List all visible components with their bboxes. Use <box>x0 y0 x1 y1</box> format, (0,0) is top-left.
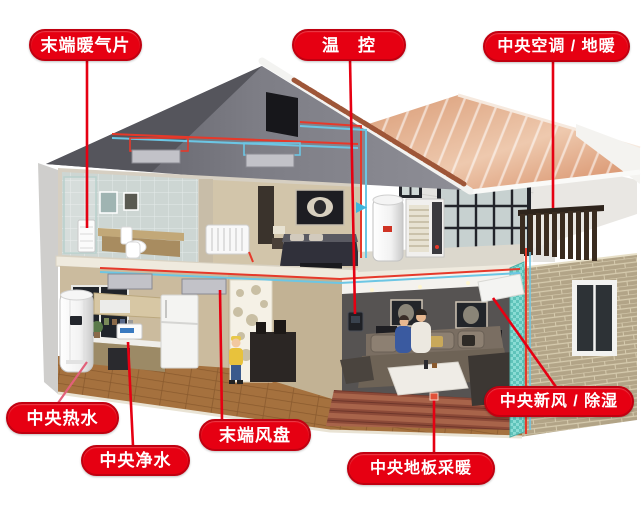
label-central-ac-floor-heating: 中央空调 / 地暖 <box>483 31 630 62</box>
thermostat-device <box>348 312 363 331</box>
label-central-hot-water: 中央热水 <box>6 402 119 434</box>
label-thermostat: 温 控 <box>292 29 406 61</box>
label-central-fresh-air-dehumidification: 中央新风 / 除湿 <box>484 386 634 417</box>
range-hood <box>100 300 130 313</box>
ceiling-light <box>418 285 422 289</box>
left-wall <box>38 163 58 394</box>
water-heater-tank <box>60 290 93 372</box>
outdoor-water-tank <box>373 195 403 261</box>
oven <box>108 348 130 370</box>
fridge <box>161 295 198 368</box>
bathroom-picture <box>124 193 138 210</box>
bedroom <box>206 180 360 269</box>
heat-pump-unit <box>406 199 444 257</box>
chimney <box>266 92 298 137</box>
bedroom-artwork <box>296 190 344 225</box>
ceiling-light <box>466 281 470 285</box>
bedroom-door <box>258 186 274 244</box>
label-terminal-radiator: 末端暖气片 <box>29 29 142 61</box>
floor-heating-marker <box>430 393 438 400</box>
brick-window <box>572 280 617 356</box>
wall-picture <box>456 302 487 328</box>
label-terminal-fan-coil: 末端风盘 <box>199 419 311 451</box>
bathroom-mirror <box>100 192 117 213</box>
ottoman <box>340 356 374 384</box>
label-central-water-purifier: 中央净水 <box>81 445 190 476</box>
label-central-floor-heating: 中央地板采暖 <box>347 452 495 485</box>
fan-coil-unit <box>132 150 180 163</box>
bathroom <box>62 172 198 262</box>
house-illustration <box>0 0 641 513</box>
ceiling-light <box>370 288 374 292</box>
bed <box>280 234 360 269</box>
hvac-house-cutaway-diagram: 末端暖气片 温 控 中央空调 / 地暖 中央热水 中央净水 末端风盘 中央地板采… <box>0 0 641 513</box>
fan-coil-unit <box>246 154 294 167</box>
fan-coil-unit <box>108 274 152 289</box>
water-purifier <box>117 324 142 339</box>
